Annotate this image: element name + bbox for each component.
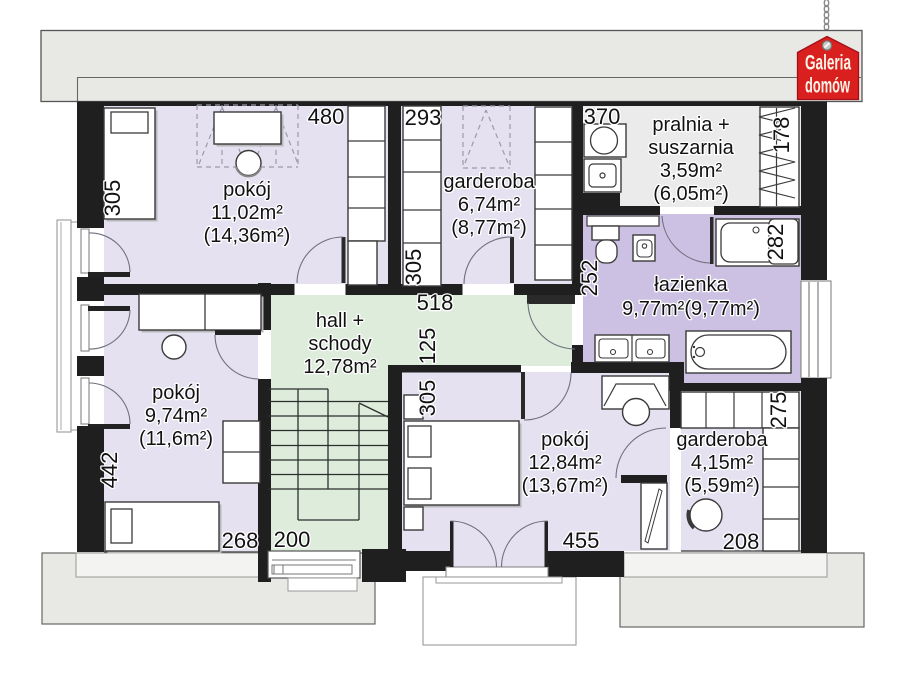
svg-text:518: 518	[417, 290, 454, 315]
svg-text:305: 305	[100, 180, 125, 217]
svg-text:268: 268	[222, 528, 259, 553]
svg-text:garderoba: garderoba	[676, 429, 768, 451]
svg-text:(13,67m²): (13,67m²)	[522, 475, 609, 497]
svg-text:11,02m²: 11,02m²	[211, 202, 283, 224]
svg-text:275: 275	[766, 392, 791, 429]
svg-text:9,74m²: 9,74m²	[145, 405, 208, 427]
svg-text:Galeria: Galeria	[805, 52, 851, 75]
svg-text:442: 442	[97, 452, 122, 489]
svg-text:pokój: pokój	[541, 429, 589, 451]
svg-text:3,59m²: 3,59m²	[660, 160, 723, 182]
svg-text:pralnia +: pralnia +	[652, 114, 729, 136]
svg-text:208: 208	[723, 529, 760, 554]
svg-text:(11,6m²): (11,6m²)	[139, 428, 213, 450]
svg-text:suszarnia: suszarnia	[648, 137, 734, 159]
svg-text:6,74m²: 6,74m²	[458, 194, 521, 216]
svg-text:hall +: hall +	[316, 310, 364, 332]
svg-text:(5,59m²): (5,59m²)	[684, 475, 760, 497]
svg-text:łazienka: łazienka	[654, 274, 728, 296]
svg-text:(14,36m²): (14,36m²)	[204, 225, 291, 247]
svg-text:12,84m²: 12,84m²	[528, 452, 602, 474]
svg-text:370: 370	[584, 104, 621, 129]
svg-text:(6,05m²): (6,05m²)	[653, 183, 729, 205]
svg-text:pokój: pokój	[223, 179, 271, 201]
svg-text:domów: domów	[805, 75, 850, 98]
svg-text:455: 455	[563, 528, 600, 553]
svg-text:4,15m²: 4,15m²	[691, 452, 754, 474]
svg-text:178: 178	[769, 117, 794, 154]
svg-text:9,77m²(9,77m²): 9,77m²(9,77m²)	[622, 298, 760, 320]
svg-text:schody: schody	[308, 333, 371, 355]
svg-text:305: 305	[415, 380, 440, 417]
svg-text:293: 293	[405, 105, 442, 130]
svg-text:252: 252	[577, 260, 602, 297]
svg-text:pokój: pokój	[152, 382, 200, 404]
svg-text:480: 480	[308, 104, 345, 129]
svg-text:282: 282	[763, 224, 788, 261]
svg-text:200: 200	[274, 527, 311, 552]
svg-text:garderoba: garderoba	[443, 171, 535, 193]
svg-text:(8,77m²): (8,77m²)	[451, 217, 527, 239]
svg-text:125: 125	[415, 328, 440, 365]
svg-text:12,78m²: 12,78m²	[303, 356, 377, 378]
svg-text:305: 305	[401, 249, 426, 286]
